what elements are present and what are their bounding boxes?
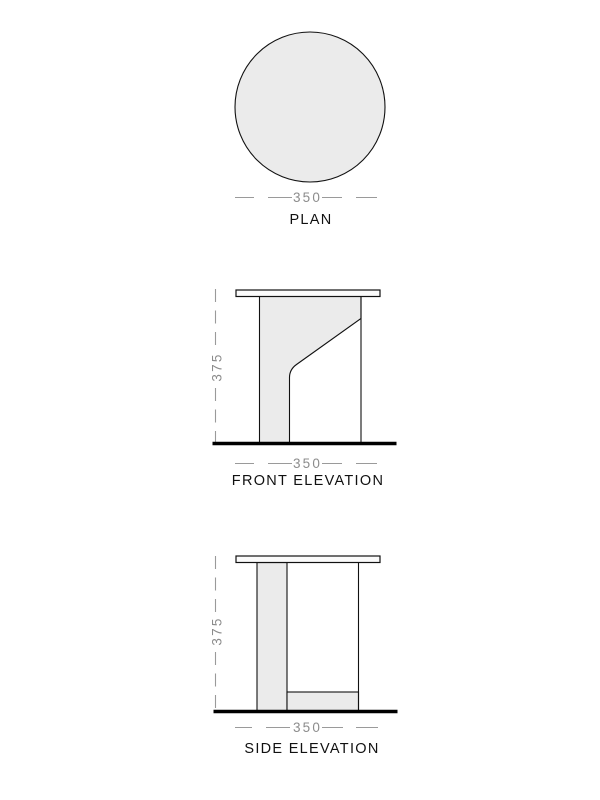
side-elevation-view: 375 350 SIDE ELEVATION [210, 556, 398, 757]
front-pedestal-shape [260, 296, 362, 443]
front-tabletop [236, 290, 380, 297]
side-width-dimension-value: 350 [293, 720, 322, 735]
front-width-dimension-value: 350 [293, 456, 322, 471]
side-height-dimension-value: 375 [210, 616, 225, 645]
plan-tabletop-circle [235, 32, 385, 182]
table-drawing-svg: 350 PLAN 375 350 FRONT ELEVATION [0, 0, 600, 800]
front-elevation-view: 375 350 FRONT ELEVATION [210, 289, 397, 489]
side-tabletop [236, 556, 380, 563]
technical-drawing-canvas: 350 PLAN 375 350 FRONT ELEVATION [0, 0, 600, 800]
plan-view-label: PLAN [289, 212, 332, 228]
front-height-dimension-value: 375 [210, 352, 225, 381]
front-elevation-label: FRONT ELEVATION [232, 473, 384, 489]
side-pedestal-column [257, 563, 287, 712]
side-base-foot [287, 692, 359, 711]
side-elevation-label: SIDE ELEVATION [244, 741, 379, 757]
plan-width-dimension-value: 350 [293, 190, 322, 205]
plan-view: 350 PLAN [235, 32, 385, 228]
